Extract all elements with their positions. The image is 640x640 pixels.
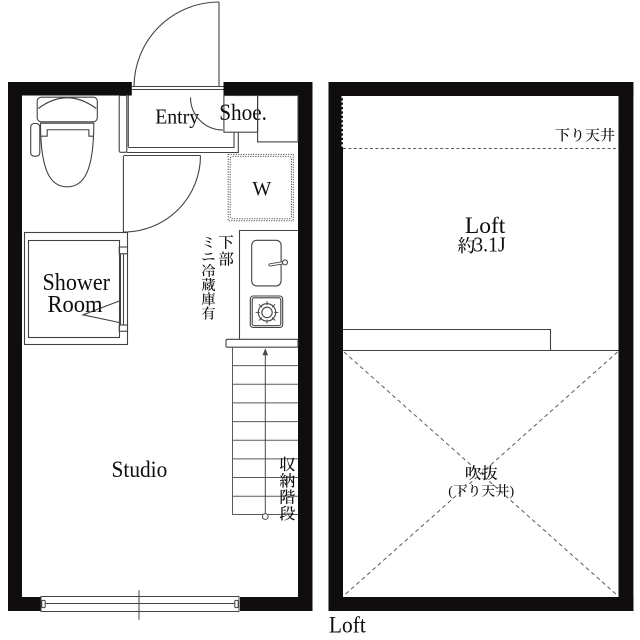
svg-text:Loft: Loft xyxy=(329,613,366,639)
svg-text:Studio: Studio xyxy=(112,457,168,483)
svg-text:): ) xyxy=(510,485,515,500)
svg-text:(: ( xyxy=(448,485,453,500)
svg-text:W: W xyxy=(252,178,271,200)
svg-text:Shoe.: Shoe. xyxy=(219,100,267,125)
svg-text:Room: Room xyxy=(48,291,103,318)
svg-text:3.1J: 3.1J xyxy=(473,233,505,257)
